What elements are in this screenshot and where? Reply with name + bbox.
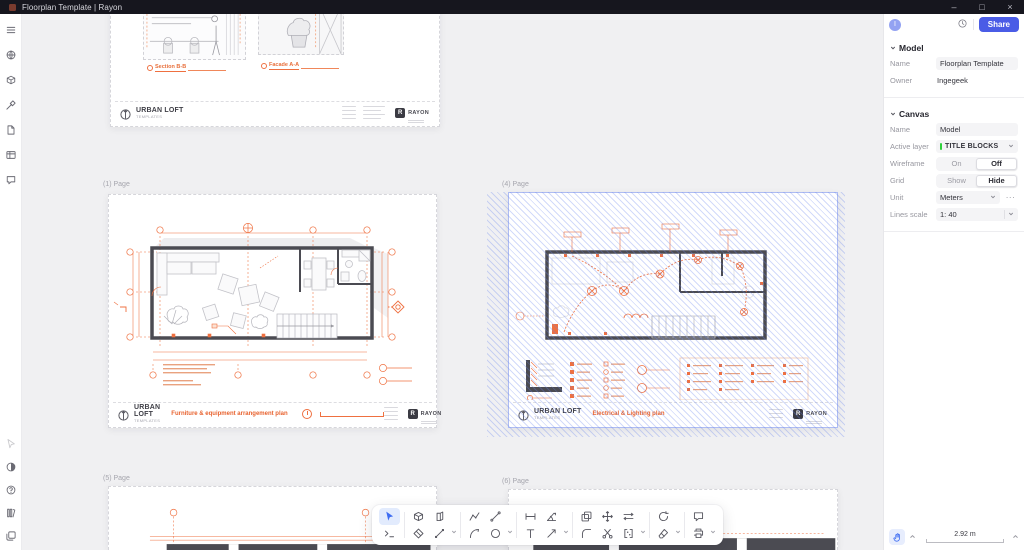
text-tool-button[interactable] [520,525,541,542]
clock-icon [302,409,312,419]
chevron-down-icon [1008,210,1014,219]
canvas-name-input[interactable]: Model [936,123,1018,136]
pointer-icon[interactable] [4,437,18,451]
close-button[interactable]: × [996,0,1024,14]
wireframe-off-button[interactable]: Off [976,158,1017,170]
arc-tool-button[interactable] [464,525,485,542]
split-tool-button[interactable] [597,525,618,542]
fillet-tool-button[interactable] [576,525,597,542]
model-owner-value: Ingegeek [936,76,968,85]
chevron-down-icon[interactable] [507,522,513,528]
history-clock-icon[interactable] [957,18,968,31]
electrical-plan-drawing [512,196,834,400]
active-layer-select[interactable]: TITLE BLOCKS [936,140,1018,153]
unit-select[interactable]: Meters [936,191,1000,204]
volume-tool-button[interactable] [408,508,429,525]
chevron-down-icon [1008,143,1014,151]
export-tool-button[interactable] [688,525,709,542]
section-drawing [143,14,246,60]
section-label[interactable]: Section B-B [147,64,226,72]
hand-icon [892,532,903,543]
library-icon[interactable] [4,506,18,520]
unit-label: Unit [890,193,936,202]
help-icon[interactable] [4,483,18,497]
page1[interactable]: URBAN LOFT TEMPLATES Furniture & equipme… [108,194,437,428]
chevron-down-icon[interactable] [451,522,457,528]
hatch-tool-button[interactable] [408,525,429,542]
prompt-tool-button[interactable] [379,525,400,542]
grid-hide-button[interactable]: Hide [976,175,1017,187]
rayon-logo: R RAYON [793,403,827,424]
page-top[interactable]: Section B-B Facade A-A URBAN LOFT TEMPLA… [110,14,440,127]
furniture-plan-drawing [112,198,433,400]
share-button[interactable]: Share [979,17,1019,32]
globe-icon[interactable] [4,48,18,62]
model-owner-label: Owner [890,76,936,85]
grid-show-button[interactable]: Show [937,175,976,187]
wireframe-label: Wireframe [890,159,936,168]
compass-icon [518,408,529,419]
model-section-header[interactable]: Model [890,43,1018,53]
leader-tool-button[interactable] [541,525,562,542]
menu-icon[interactable] [4,23,18,37]
layer-color-indicator [940,143,942,150]
lines-scale-select[interactable]: 1: 40 [936,208,1018,221]
segment-tool-button[interactable] [429,525,450,542]
chevron-up-icon[interactable] [909,533,916,542]
plan-title: Furniture & equipment arrangement plan [171,411,287,417]
wall-tool-button[interactable] [429,508,450,525]
page1-label[interactable]: (1) Page [103,181,130,188]
left-sidebar [0,14,22,550]
select-tool-button[interactable] [379,508,400,525]
app-icon [9,4,16,11]
active-layer-label: Active layer [890,142,936,151]
marker-circle-icon [147,65,153,71]
minimize-button[interactable]: – [940,0,968,14]
facade-label[interactable]: Facade A-A [261,62,339,70]
title-block: URBAN LOFT TEMPLATES Electrical & Lighti… [513,402,833,424]
facade-drawing [258,14,344,55]
canvas-name-label: Name [890,125,936,134]
lines-scale-label: Lines scale [890,210,936,219]
drawing-toolbar [372,505,723,545]
circle-tool-button[interactable] [485,525,506,542]
comment-tool-button[interactable] [688,508,709,525]
rayon-logo: R RAYON [395,102,429,123]
chevron-down-icon[interactable] [640,522,646,528]
titlebar: Floorplan Template | Rayon – □ × [0,0,1024,14]
page4[interactable]: URBAN LOFT TEMPLATES Electrical & Lighti… [508,192,838,428]
unit-more-button[interactable]: ··· [1003,191,1018,204]
chevron-up-icon[interactable] [1012,533,1019,542]
compass-icon [118,408,129,419]
canvas-section-header[interactable]: Canvas [890,109,1018,119]
marker-circle-icon [261,63,267,69]
properties-panel: I Share Model Name Floorplan Template Ow… [883,14,1024,550]
move-tool-button[interactable] [597,508,618,525]
model-cube-icon[interactable] [4,73,18,87]
tables-icon[interactable] [4,148,18,162]
line-tool-button[interactable] [485,508,506,525]
design-icon[interactable] [4,98,18,112]
chevron-down-icon [990,193,996,202]
chevron-down-icon [890,45,896,51]
page5-label[interactable]: (5) Page [103,475,130,482]
grid-toggle: Show Hide [936,174,1018,188]
plan-title: Electrical & Lighting plan [593,411,665,417]
maximize-button[interactable]: □ [968,0,996,14]
eraser-tool-button[interactable] [653,525,674,542]
window-title: Floorplan Template | Rayon [22,3,122,12]
chevron-down-icon [890,111,896,117]
angular-dimension-tool-button[interactable] [541,508,562,525]
scale-indicator: 2.92 m [926,531,1004,543]
canvas-statusbar: 2.92 m [884,524,1024,550]
chevron-down-icon[interactable] [710,522,716,528]
model-name-label: Name [890,59,936,68]
rayon-app-window: Floorplan Template | Rayon – □ × [0,0,1024,550]
linear-dimension-tool-button[interactable] [520,508,541,525]
wireframe-on-button[interactable]: On [937,158,976,170]
pages-icon[interactable] [4,123,18,137]
chevron-down-icon[interactable] [563,522,569,528]
drawing-canvas[interactable]: Section B-B Facade A-A URBAN LOFT TEMPLA… [22,14,883,550]
title-block: URBAN LOFT TEMPLATES Furniture & equipme… [113,402,432,424]
theme-toggle-icon[interactable] [4,460,18,474]
wireframe-toggle: On Off [936,157,1018,171]
pan-hand-button[interactable] [889,529,905,545]
chevron-down-icon[interactable] [675,522,681,528]
comments-icon[interactable] [4,173,18,187]
polyline-tool-button[interactable] [464,508,485,525]
page4-label[interactable]: (4) Page [502,181,529,188]
copies-icon[interactable] [4,529,18,543]
compass-icon [120,107,131,118]
page6-label[interactable]: (6) Page [502,478,529,485]
rotate-tool-button[interactable] [653,508,674,525]
rayon-logo: R RAYON [408,403,442,424]
user-avatar[interactable]: I [889,19,901,31]
scale-bar [320,411,384,417]
offset-tool-button[interactable] [618,508,639,525]
title-block: URBAN LOFT TEMPLATES R RAYON [115,101,435,123]
model-name-input[interactable]: Floorplan Template [936,57,1018,70]
copy-tool-button[interactable] [576,508,597,525]
grid-label: Grid [890,176,936,185]
array-tool-button[interactable] [618,525,639,542]
